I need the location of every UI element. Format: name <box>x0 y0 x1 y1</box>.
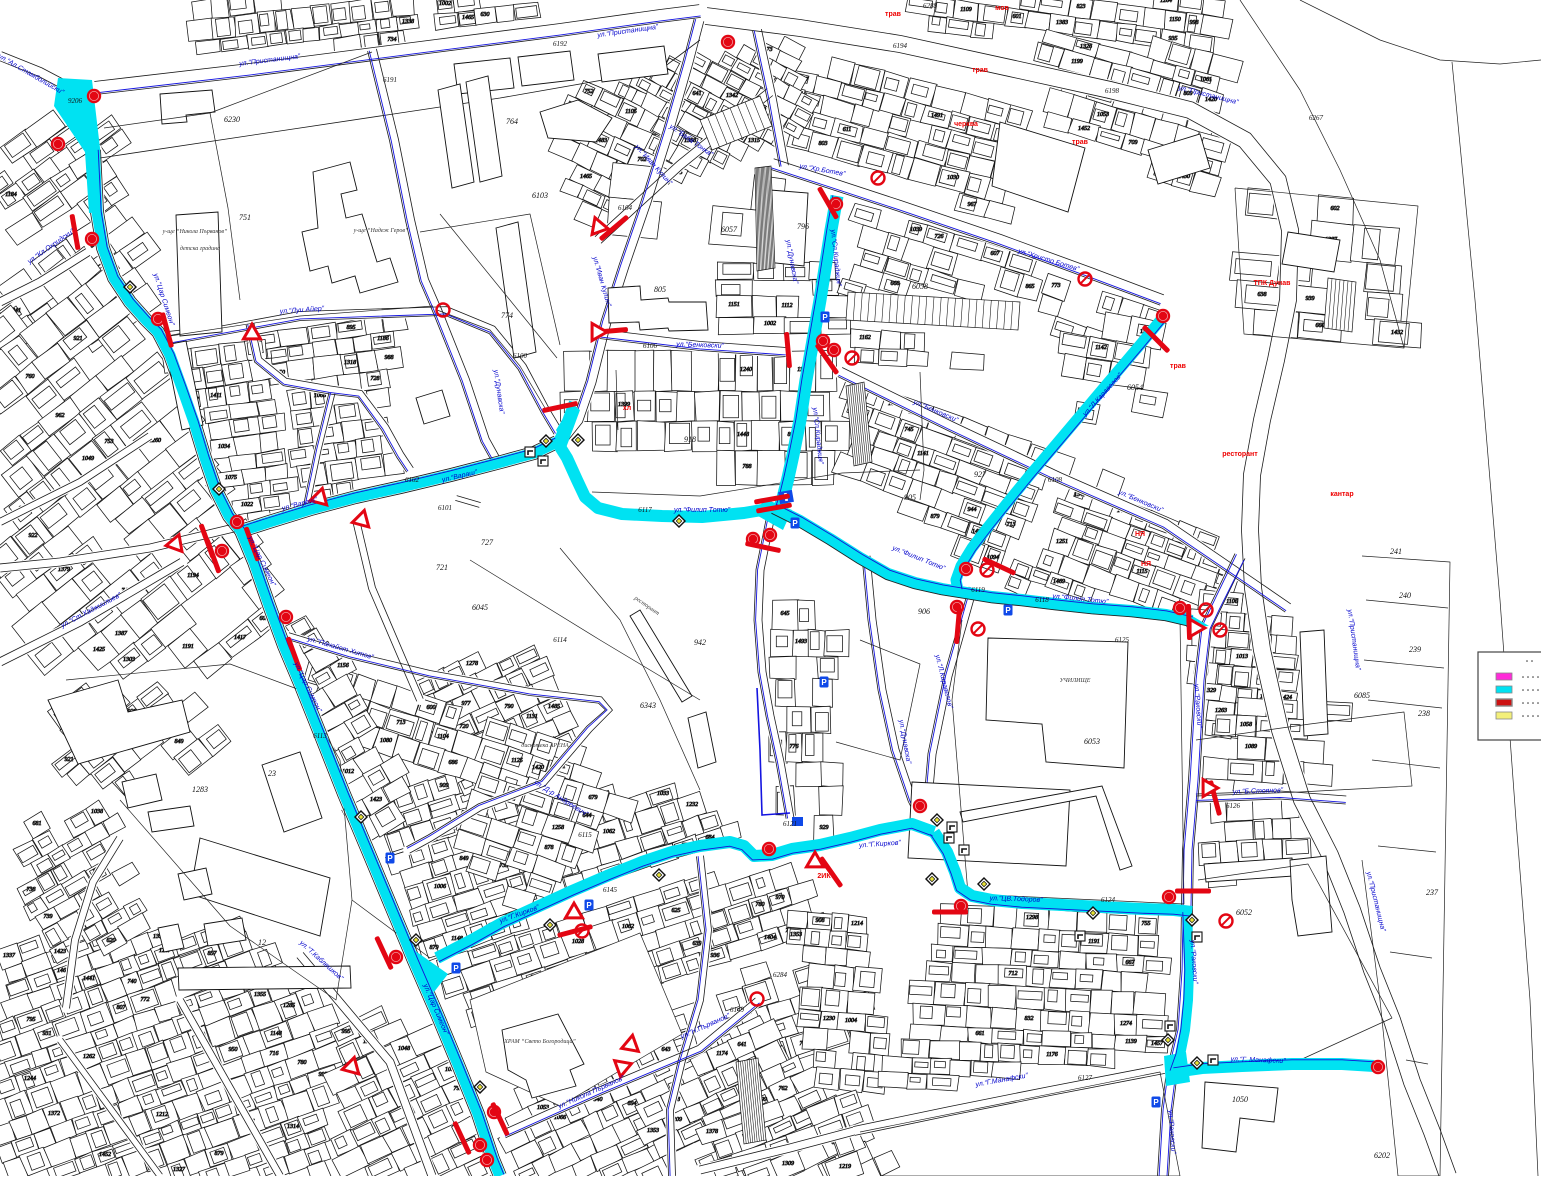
svg-text:935: 935 <box>1169 36 1178 42</box>
svg-text:998: 998 <box>1190 20 1199 26</box>
svg-text:1423: 1423 <box>370 796 382 803</box>
svg-text:929: 929 <box>820 825 829 831</box>
svg-text:1105: 1105 <box>625 109 637 115</box>
svg-text:1417: 1417 <box>234 634 247 641</box>
svg-text:776: 776 <box>790 744 799 750</box>
svg-text:1278: 1278 <box>466 661 478 667</box>
svg-text:1062: 1062 <box>622 924 634 930</box>
svg-text:6230: 6230 <box>224 115 240 124</box>
svg-text:ул.“Филип Тотю”: ул.“Филип Тотю” <box>673 507 731 514</box>
svg-text:1387: 1387 <box>115 631 128 637</box>
svg-text:кантар: кантар <box>1330 491 1353 498</box>
svg-text:23: 23 <box>268 769 276 778</box>
svg-text:921: 921 <box>65 757 74 763</box>
svg-text:796: 796 <box>797 222 809 231</box>
svg-text:хл: хл <box>623 405 631 412</box>
svg-text:1240: 1240 <box>740 366 752 373</box>
svg-text:6202: 6202 <box>1374 1151 1390 1160</box>
svg-text:трав: трав <box>1072 139 1089 146</box>
svg-text:716: 716 <box>270 1051 279 1057</box>
svg-text:995: 995 <box>342 1029 351 1035</box>
svg-text:1469: 1469 <box>1053 578 1065 585</box>
svg-text:6125: 6125 <box>1115 636 1130 644</box>
svg-text:1383: 1383 <box>1056 20 1068 26</box>
svg-text:черква: черква <box>954 121 978 128</box>
svg-text:6124: 6124 <box>1101 896 1116 904</box>
svg-text:1049: 1049 <box>82 455 94 462</box>
svg-text:709: 709 <box>1129 140 1138 146</box>
svg-text:630: 630 <box>481 12 490 18</box>
svg-text:1219: 1219 <box>839 1164 851 1170</box>
svg-text:1465: 1465 <box>580 173 592 180</box>
svg-text:6102: 6102 <box>405 476 420 484</box>
svg-text:755: 755 <box>1142 921 1151 927</box>
svg-text:790: 790 <box>505 704 514 710</box>
svg-text:807: 807 <box>117 1005 127 1011</box>
svg-text:6101: 6101 <box>438 504 452 512</box>
svg-text:713: 713 <box>397 720 406 726</box>
svg-text:1030: 1030 <box>947 175 959 181</box>
svg-text:1214: 1214 <box>851 920 863 927</box>
svg-text:1493: 1493 <box>795 638 807 645</box>
svg-text:1176: 1176 <box>1046 1052 1058 1058</box>
svg-text:P: P <box>822 313 828 322</box>
svg-text:1353: 1353 <box>790 932 802 938</box>
svg-text:6057: 6057 <box>721 225 738 234</box>
svg-text:638: 638 <box>1258 292 1267 298</box>
svg-text:738: 738 <box>27 887 36 893</box>
svg-text:ресторант: ресторант <box>1222 451 1258 458</box>
svg-text:1150: 1150 <box>1169 17 1181 23</box>
svg-text:1303: 1303 <box>123 657 135 663</box>
svg-text:6117: 6117 <box>638 506 652 514</box>
svg-text:713: 713 <box>1007 522 1016 528</box>
svg-text:6192: 6192 <box>553 40 568 48</box>
svg-text:760: 760 <box>26 374 35 380</box>
svg-text:1355: 1355 <box>254 992 266 998</box>
svg-text:905: 905 <box>904 493 916 502</box>
svg-text:1327: 1327 <box>173 1167 186 1173</box>
svg-text:906: 906 <box>918 607 930 616</box>
svg-text:780: 780 <box>298 1060 307 1066</box>
svg-text:726: 726 <box>935 234 944 240</box>
svg-text:879: 879 <box>215 1151 224 1157</box>
svg-text:942: 942 <box>694 638 706 647</box>
svg-text:мов: мов <box>995 5 1009 12</box>
svg-text:927: 927 <box>974 470 987 479</box>
svg-text:1038: 1038 <box>91 809 103 815</box>
svg-text:1283: 1283 <box>192 785 208 794</box>
svg-text:679: 679 <box>589 795 598 801</box>
svg-text:у-ще “Никола Първанов”: у-ще “Никола Първанов” <box>162 228 228 235</box>
svg-text:600: 600 <box>427 705 436 711</box>
svg-text:667: 667 <box>1126 960 1136 966</box>
svg-text:1338: 1338 <box>402 19 414 25</box>
svg-text:720: 720 <box>460 724 469 730</box>
svg-text:879: 879 <box>931 514 940 520</box>
svg-text:745: 745 <box>905 426 914 433</box>
svg-text:6104: 6104 <box>618 204 633 212</box>
svg-text:1058: 1058 <box>1240 722 1252 728</box>
svg-text:1061: 1061 <box>1200 77 1212 83</box>
svg-text:740: 740 <box>128 978 137 985</box>
svg-text:1326: 1326 <box>1080 44 1092 50</box>
svg-text:1142: 1142 <box>1095 344 1107 351</box>
svg-text:1089: 1089 <box>1245 744 1257 750</box>
svg-text:1404: 1404 <box>764 934 776 941</box>
svg-text:трав: трав <box>1170 363 1187 370</box>
svg-text:1151: 1151 <box>728 302 740 308</box>
svg-text:607: 607 <box>991 251 1001 257</box>
svg-text:1315: 1315 <box>748 138 760 144</box>
svg-text:1230: 1230 <box>823 1016 835 1022</box>
svg-text:1004: 1004 <box>845 1017 857 1024</box>
svg-text:751: 751 <box>239 213 251 222</box>
svg-text:НЯ: НЯ <box>1141 561 1151 568</box>
svg-text:1194: 1194 <box>187 572 199 579</box>
svg-text:1251: 1251 <box>1056 539 1068 545</box>
svg-text:641: 641 <box>693 90 702 97</box>
svg-text:ХРАМ “Свето Богородица”: ХРАМ “Свето Богородица” <box>503 1038 576 1045</box>
svg-text:823: 823 <box>1077 4 1086 10</box>
svg-text:639: 639 <box>693 941 702 947</box>
svg-text:P: P <box>387 854 393 863</box>
svg-text:1115: 1115 <box>1136 569 1147 575</box>
svg-text:620: 620 <box>107 938 116 944</box>
svg-text:1109: 1109 <box>960 7 972 13</box>
svg-text:1318: 1318 <box>344 360 356 366</box>
svg-text:1013: 1013 <box>1236 654 1248 660</box>
svg-text:849: 849 <box>460 855 469 862</box>
svg-text:12: 12 <box>258 938 266 947</box>
svg-text:1452: 1452 <box>99 1151 111 1158</box>
svg-text:878: 878 <box>545 845 554 851</box>
svg-text:6113: 6113 <box>313 732 327 740</box>
svg-text:6114: 6114 <box>553 636 567 644</box>
svg-text:6106: 6106 <box>643 342 658 350</box>
svg-text:1186: 1186 <box>377 336 389 342</box>
svg-text:1314: 1314 <box>287 1123 299 1130</box>
svg-text:1372: 1372 <box>48 1111 60 1117</box>
svg-text:6058: 6058 <box>912 282 928 291</box>
svg-text:P: P <box>453 964 459 973</box>
svg-text:1002: 1002 <box>439 1 451 7</box>
svg-text:1411: 1411 <box>210 392 222 399</box>
svg-text:773: 773 <box>1052 283 1061 289</box>
svg-text:1342: 1342 <box>726 92 738 99</box>
svg-text:931: 931 <box>43 1031 52 1037</box>
svg-text:6121: 6121 <box>783 820 797 828</box>
svg-text:602: 602 <box>1331 206 1340 212</box>
svg-text:601: 601 <box>1013 14 1022 20</box>
svg-text:1298: 1298 <box>1026 915 1038 921</box>
svg-text:6119: 6119 <box>971 586 985 594</box>
svg-text:1080: 1080 <box>380 738 392 744</box>
svg-text:803: 803 <box>819 141 828 147</box>
svg-text:681: 681 <box>33 821 42 827</box>
svg-text:1075: 1075 <box>225 475 237 481</box>
svg-text:1053: 1053 <box>1097 112 1109 118</box>
svg-text:922: 922 <box>29 533 38 539</box>
svg-text:1285: 1285 <box>283 1003 295 1009</box>
svg-text:трав: трав <box>885 11 902 18</box>
svg-text:1309: 1309 <box>782 1161 794 1167</box>
svg-text:774: 774 <box>501 311 513 320</box>
svg-text:962: 962 <box>56 413 65 419</box>
svg-text:753: 753 <box>105 439 114 445</box>
svg-text:668: 668 <box>891 281 900 287</box>
svg-text:237: 237 <box>1426 888 1439 897</box>
svg-text:6103: 6103 <box>532 191 548 200</box>
svg-text:643: 643 <box>662 1046 671 1053</box>
svg-text:1139: 1139 <box>1125 1039 1137 1045</box>
svg-text:детска градина: детска градина <box>180 245 220 252</box>
svg-text:921: 921 <box>74 336 83 342</box>
svg-text:944: 944 <box>968 506 977 513</box>
svg-text:6045: 6045 <box>472 603 488 612</box>
svg-text:НЯ: НЯ <box>1135 531 1145 538</box>
svg-text:1002: 1002 <box>764 321 776 327</box>
svg-text:1378: 1378 <box>706 1129 718 1135</box>
svg-text:1062: 1062 <box>603 829 615 835</box>
svg-text:1184: 1184 <box>5 191 17 198</box>
svg-text:1148: 1148 <box>270 1030 282 1037</box>
svg-text:6108: 6108 <box>1048 476 1063 484</box>
svg-text:795: 795 <box>27 1017 36 1023</box>
svg-text:1465: 1465 <box>462 14 474 21</box>
svg-text:805: 805 <box>654 285 666 294</box>
svg-text:1191: 1191 <box>182 644 194 650</box>
svg-text:641: 641 <box>738 1041 747 1048</box>
svg-text:241: 241 <box>1390 547 1402 556</box>
svg-text:764: 764 <box>506 117 518 126</box>
svg-text:6145: 6145 <box>603 886 618 894</box>
svg-text:6100: 6100 <box>513 352 528 360</box>
svg-text:1039: 1039 <box>910 227 922 233</box>
svg-text:у-ще “Надеж Геров”: у-ще “Надеж Геров” <box>353 227 409 234</box>
svg-text:908: 908 <box>816 918 825 924</box>
svg-text:780: 780 <box>756 902 765 908</box>
svg-text:918: 918 <box>684 435 696 444</box>
svg-text:6191: 6191 <box>383 76 397 84</box>
svg-text:УЧИЛИЩЕ: УЧИЛИЩЕ <box>1060 678 1091 684</box>
svg-text:239: 239 <box>1409 645 1421 654</box>
svg-text:1199: 1199 <box>1071 59 1083 65</box>
svg-text:6288: 6288 <box>923 2 938 10</box>
svg-text:1006: 1006 <box>434 884 446 890</box>
svg-text:611: 611 <box>843 127 852 133</box>
svg-text:734: 734 <box>388 36 397 43</box>
svg-text:P: P <box>1005 606 1011 615</box>
svg-text:1125: 1125 <box>511 758 523 764</box>
svg-text:625: 625 <box>672 908 681 914</box>
svg-text:6053: 6053 <box>1084 737 1100 746</box>
svg-text:6054: 6054 <box>1127 383 1143 392</box>
svg-text:988: 988 <box>385 355 394 361</box>
svg-text:6198: 6198 <box>1105 87 1120 95</box>
svg-text:1244: 1244 <box>24 1075 36 1082</box>
svg-text:6085: 6085 <box>1354 691 1370 700</box>
svg-text:1191: 1191 <box>1088 939 1100 945</box>
svg-text:1112: 1112 <box>781 303 792 309</box>
svg-text:1022: 1022 <box>241 502 253 508</box>
svg-text:1232: 1232 <box>686 802 698 808</box>
svg-text:1452: 1452 <box>1078 125 1090 132</box>
svg-text:P: P <box>792 519 798 528</box>
svg-text:1156: 1156 <box>337 663 349 669</box>
svg-text:2ИК: 2ИК <box>817 873 831 880</box>
svg-text:1048: 1048 <box>398 1045 410 1052</box>
svg-text:1420: 1420 <box>532 764 544 771</box>
svg-text:1258: 1258 <box>552 825 564 831</box>
svg-text:967: 967 <box>968 202 978 208</box>
svg-text:9206: 9206 <box>68 97 83 105</box>
svg-text:P: P <box>586 901 592 910</box>
svg-text:739: 739 <box>44 914 53 920</box>
svg-text:788: 788 <box>743 464 752 470</box>
svg-text:238: 238 <box>1418 709 1430 718</box>
svg-text:6126: 6126 <box>1226 802 1241 810</box>
svg-text:1485: 1485 <box>548 703 560 710</box>
svg-text:950: 950 <box>229 1047 238 1053</box>
svg-text:686: 686 <box>449 760 458 766</box>
svg-text:1441: 1441 <box>83 975 95 982</box>
svg-text:865: 865 <box>1026 284 1035 290</box>
svg-text:895: 895 <box>347 325 356 331</box>
svg-text:728: 728 <box>371 376 380 382</box>
svg-text:1264: 1264 <box>1160 0 1172 4</box>
svg-text:трав: трав <box>972 67 989 74</box>
svg-text:1379: 1379 <box>58 567 70 573</box>
svg-text:240: 240 <box>1399 591 1411 600</box>
svg-text:727: 727 <box>481 538 494 547</box>
svg-text:1425: 1425 <box>93 646 105 653</box>
svg-text:939: 939 <box>1306 296 1315 302</box>
svg-text:977: 977 <box>462 701 472 707</box>
svg-text:1353: 1353 <box>647 1128 659 1134</box>
svg-text:752: 752 <box>585 89 594 95</box>
svg-text:1162: 1162 <box>859 335 871 341</box>
svg-text:1423: 1423 <box>54 948 66 955</box>
svg-text:6194: 6194 <box>893 42 908 50</box>
svg-text:1104: 1104 <box>437 733 449 740</box>
svg-text:909: 909 <box>440 783 449 789</box>
svg-text:772: 772 <box>141 997 150 1003</box>
svg-text:879: 879 <box>430 945 439 951</box>
svg-text:ТПК Дунав: ТПК Дунав <box>1254 280 1292 287</box>
svg-text:1106: 1106 <box>1226 599 1238 605</box>
svg-text:857: 857 <box>208 951 218 957</box>
svg-text:762: 762 <box>779 1086 788 1092</box>
svg-text:712: 712 <box>1009 971 1018 977</box>
svg-text:1028: 1028 <box>572 939 584 945</box>
svg-text:1448: 1448 <box>737 431 749 438</box>
svg-text:1174: 1174 <box>716 1050 728 1057</box>
svg-text:1033: 1033 <box>657 791 669 797</box>
svg-text:1131: 1131 <box>526 714 538 720</box>
svg-text:1337: 1337 <box>3 953 16 959</box>
svg-text:660: 660 <box>1316 323 1325 329</box>
svg-text:849: 849 <box>175 738 184 745</box>
svg-text:1432: 1432 <box>1391 329 1403 336</box>
svg-text:P: P <box>1153 1098 1159 1107</box>
svg-text:6118: 6118 <box>1035 596 1049 604</box>
svg-text:6267: 6267 <box>1309 114 1324 122</box>
svg-text:1274: 1274 <box>1120 1020 1132 1027</box>
svg-text:1262: 1262 <box>83 1054 95 1060</box>
svg-text:6127: 6127 <box>1078 1074 1093 1082</box>
svg-text:936: 936 <box>711 953 720 959</box>
svg-text:721: 721 <box>436 563 448 572</box>
svg-text:6343: 6343 <box>640 701 656 710</box>
svg-text:1050: 1050 <box>1232 1095 1248 1104</box>
svg-text:6284: 6284 <box>773 971 788 979</box>
svg-text:1263: 1263 <box>1215 708 1227 714</box>
svg-text:832: 832 <box>1025 1016 1034 1022</box>
svg-text:6052: 6052 <box>1236 908 1252 917</box>
svg-text:6115: 6115 <box>578 831 592 839</box>
svg-text:дискотека АРЕНА: дискотека АРЕНА <box>521 742 569 749</box>
svg-text:1491: 1491 <box>931 112 943 119</box>
svg-text:645: 645 <box>781 610 790 617</box>
svg-text:1212: 1212 <box>156 1112 168 1118</box>
svg-text:6149: 6149 <box>730 1006 745 1014</box>
svg-text:661: 661 <box>976 1031 985 1037</box>
svg-text:1034: 1034 <box>218 443 230 450</box>
svg-text:970: 970 <box>776 895 785 901</box>
svg-text:P: P <box>821 678 827 687</box>
